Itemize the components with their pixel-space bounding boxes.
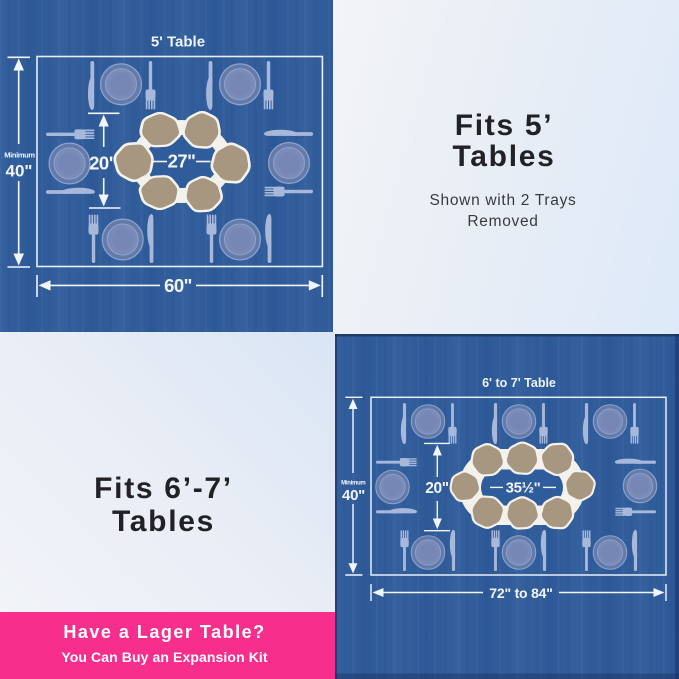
svg-text:40": 40" bbox=[342, 487, 365, 504]
svg-text:20": 20" bbox=[425, 480, 448, 497]
svg-text:Minimum: Minimum bbox=[341, 481, 365, 487]
svg-text:60": 60" bbox=[164, 275, 192, 296]
svg-text:Minimum: Minimum bbox=[4, 151, 35, 160]
svg-text:6' to 7' Table: 6' to 7' Table bbox=[482, 376, 556, 390]
svg-text:20": 20" bbox=[89, 152, 117, 173]
svg-text:72" to 84": 72" to 84" bbox=[489, 585, 552, 601]
svg-text:5' Table: 5' Table bbox=[151, 34, 205, 51]
svg-text:35½": 35½" bbox=[506, 480, 541, 497]
svg-text:27": 27" bbox=[168, 151, 196, 172]
svg-text:40": 40" bbox=[6, 162, 33, 181]
